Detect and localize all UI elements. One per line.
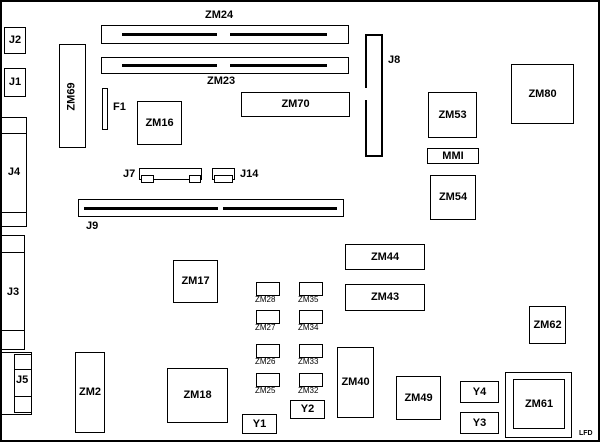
slot-zm24-label: ZM24 [205, 10, 233, 21]
connector-j5-divider-top [14, 369, 32, 370]
connector-j1: J1 [4, 68, 26, 97]
component-zm33 [299, 344, 323, 358]
component-zm70: ZM70 [241, 92, 350, 117]
component-zm49: ZM49 [396, 376, 441, 420]
connector-j4: J4 [1, 117, 27, 227]
component-y4-label: Y4 [473, 387, 486, 398]
connector-j14-label: J14 [240, 169, 258, 180]
component-zm80-label: ZM80 [528, 89, 556, 100]
slot-j9-contact-right [223, 207, 337, 210]
connector-j2: J2 [4, 27, 26, 54]
component-zm25-label: ZM25 [255, 387, 275, 395]
connector-j4-divider-bottom [1, 212, 27, 213]
component-zm26-label: ZM26 [255, 358, 275, 366]
component-zm25 [256, 373, 280, 387]
component-zm44: ZM44 [345, 244, 425, 270]
connector-j3: J3 [1, 235, 25, 350]
slot-zm24-contact-right [230, 33, 327, 36]
component-zm26 [256, 344, 280, 358]
component-zm16: ZM16 [137, 101, 182, 145]
component-zm16-label: ZM16 [145, 118, 173, 129]
component-zm54: ZM54 [430, 175, 476, 220]
component-f1-label: F1 [113, 102, 126, 113]
component-zm61-label: ZM61 [525, 399, 553, 410]
component-zm35-label: ZM35 [298, 296, 318, 304]
pcb-layout-diagram: J2 J1 J4 J3 J5 ZM24 ZM23 ZM69 F1 ZM16 ZM… [0, 0, 600, 442]
component-zm69-label: ZM69 [67, 82, 78, 110]
connector-j8 [365, 34, 383, 157]
component-zm2: ZM2 [75, 352, 105, 433]
component-zm28-label: ZM28 [255, 296, 275, 304]
component-zm54-label: ZM54 [439, 192, 467, 203]
component-zm62: ZM62 [529, 306, 566, 344]
component-zm17: ZM17 [173, 260, 218, 303]
connector-j8-label: J8 [388, 55, 400, 66]
slot-zm24 [101, 25, 349, 44]
connector-j5-label: J5 [16, 375, 28, 386]
component-zm35 [299, 282, 323, 296]
connector-j14-tab [214, 175, 233, 183]
slot-zm23-contact-right [230, 64, 327, 67]
slot-zm23 [101, 57, 349, 74]
connector-j7-tab-right [189, 175, 201, 183]
component-y3-label: Y3 [473, 418, 486, 429]
component-y1-label: Y1 [253, 419, 266, 430]
component-f1 [102, 88, 108, 130]
component-zm40-label: ZM40 [341, 377, 369, 388]
connector-j1-label: J1 [9, 77, 21, 88]
connector-j4-divider-top [1, 133, 27, 134]
slot-zm23-contact-left [122, 64, 217, 67]
slot-j9-contact-left [84, 207, 218, 210]
component-zm43: ZM43 [345, 284, 425, 311]
component-zm80: ZM80 [511, 64, 574, 124]
component-zm2-label: ZM2 [79, 387, 101, 398]
component-zm17-label: ZM17 [181, 276, 209, 287]
slot-j9 [78, 199, 344, 217]
component-zm18-label: ZM18 [183, 390, 211, 401]
component-zm28 [256, 282, 280, 296]
corner-mark-label: LFD [579, 430, 593, 437]
component-zm27 [256, 310, 280, 324]
component-zm34 [299, 310, 323, 324]
component-y2-label: Y2 [301, 404, 314, 415]
component-zm53: ZM53 [428, 92, 477, 138]
component-zm40: ZM40 [337, 347, 374, 418]
component-y4: Y4 [460, 381, 499, 403]
component-zm70-label: ZM70 [281, 99, 309, 110]
slot-zm24-contact-left [122, 33, 217, 36]
slot-zm23-label: ZM23 [207, 76, 235, 87]
component-zm49-label: ZM49 [404, 393, 432, 404]
component-zm61: ZM61 [513, 379, 565, 429]
connector-j8-break [365, 88, 367, 100]
connector-j5-divider-bottom [14, 396, 32, 397]
component-zm62-label: ZM62 [533, 320, 561, 331]
component-zm27-label: ZM27 [255, 324, 275, 332]
connector-j4-label: J4 [8, 167, 20, 178]
component-y3: Y3 [460, 412, 499, 434]
connector-j7-label: J7 [123, 169, 135, 180]
connector-j3-divider-top [1, 252, 25, 253]
component-mmi-label: MMI [442, 151, 463, 162]
component-zm32-label: ZM32 [298, 387, 318, 395]
connector-j3-label: J3 [7, 287, 19, 298]
component-zm34-label: ZM34 [298, 324, 318, 332]
component-zm43-label: ZM43 [371, 292, 399, 303]
component-y1: Y1 [242, 414, 277, 434]
component-zm33-label: ZM33 [298, 358, 318, 366]
component-zm69: ZM69 [59, 44, 86, 148]
component-zm18: ZM18 [167, 368, 228, 423]
connector-j2-label: J2 [9, 35, 21, 46]
component-y2: Y2 [290, 400, 325, 419]
connector-j3-divider-bottom [1, 330, 25, 331]
component-zm44-label: ZM44 [371, 252, 399, 263]
slot-j9-label: J9 [86, 221, 98, 232]
component-zm32 [299, 373, 323, 387]
component-mmi: MMI [427, 148, 479, 164]
connector-j7-tab-left [141, 175, 154, 183]
component-zm53-label: ZM53 [438, 110, 466, 121]
